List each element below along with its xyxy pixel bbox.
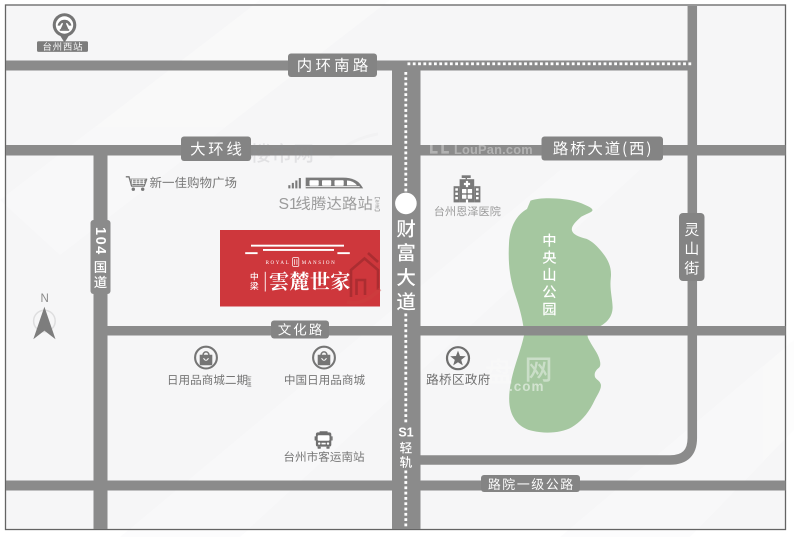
svg-text:N: N (40, 293, 48, 305)
svg-text:104: 104 (92, 227, 108, 256)
svg-text:LouPan.com: LouPan.com (454, 142, 533, 157)
svg-text:S1: S1 (279, 196, 299, 213)
svg-text:S1: S1 (398, 425, 413, 439)
svg-text:.com: .com (509, 379, 545, 394)
svg-text:ROYAL: ROYAL (266, 261, 291, 266)
svg-text:MANSION: MANSION (302, 261, 337, 266)
